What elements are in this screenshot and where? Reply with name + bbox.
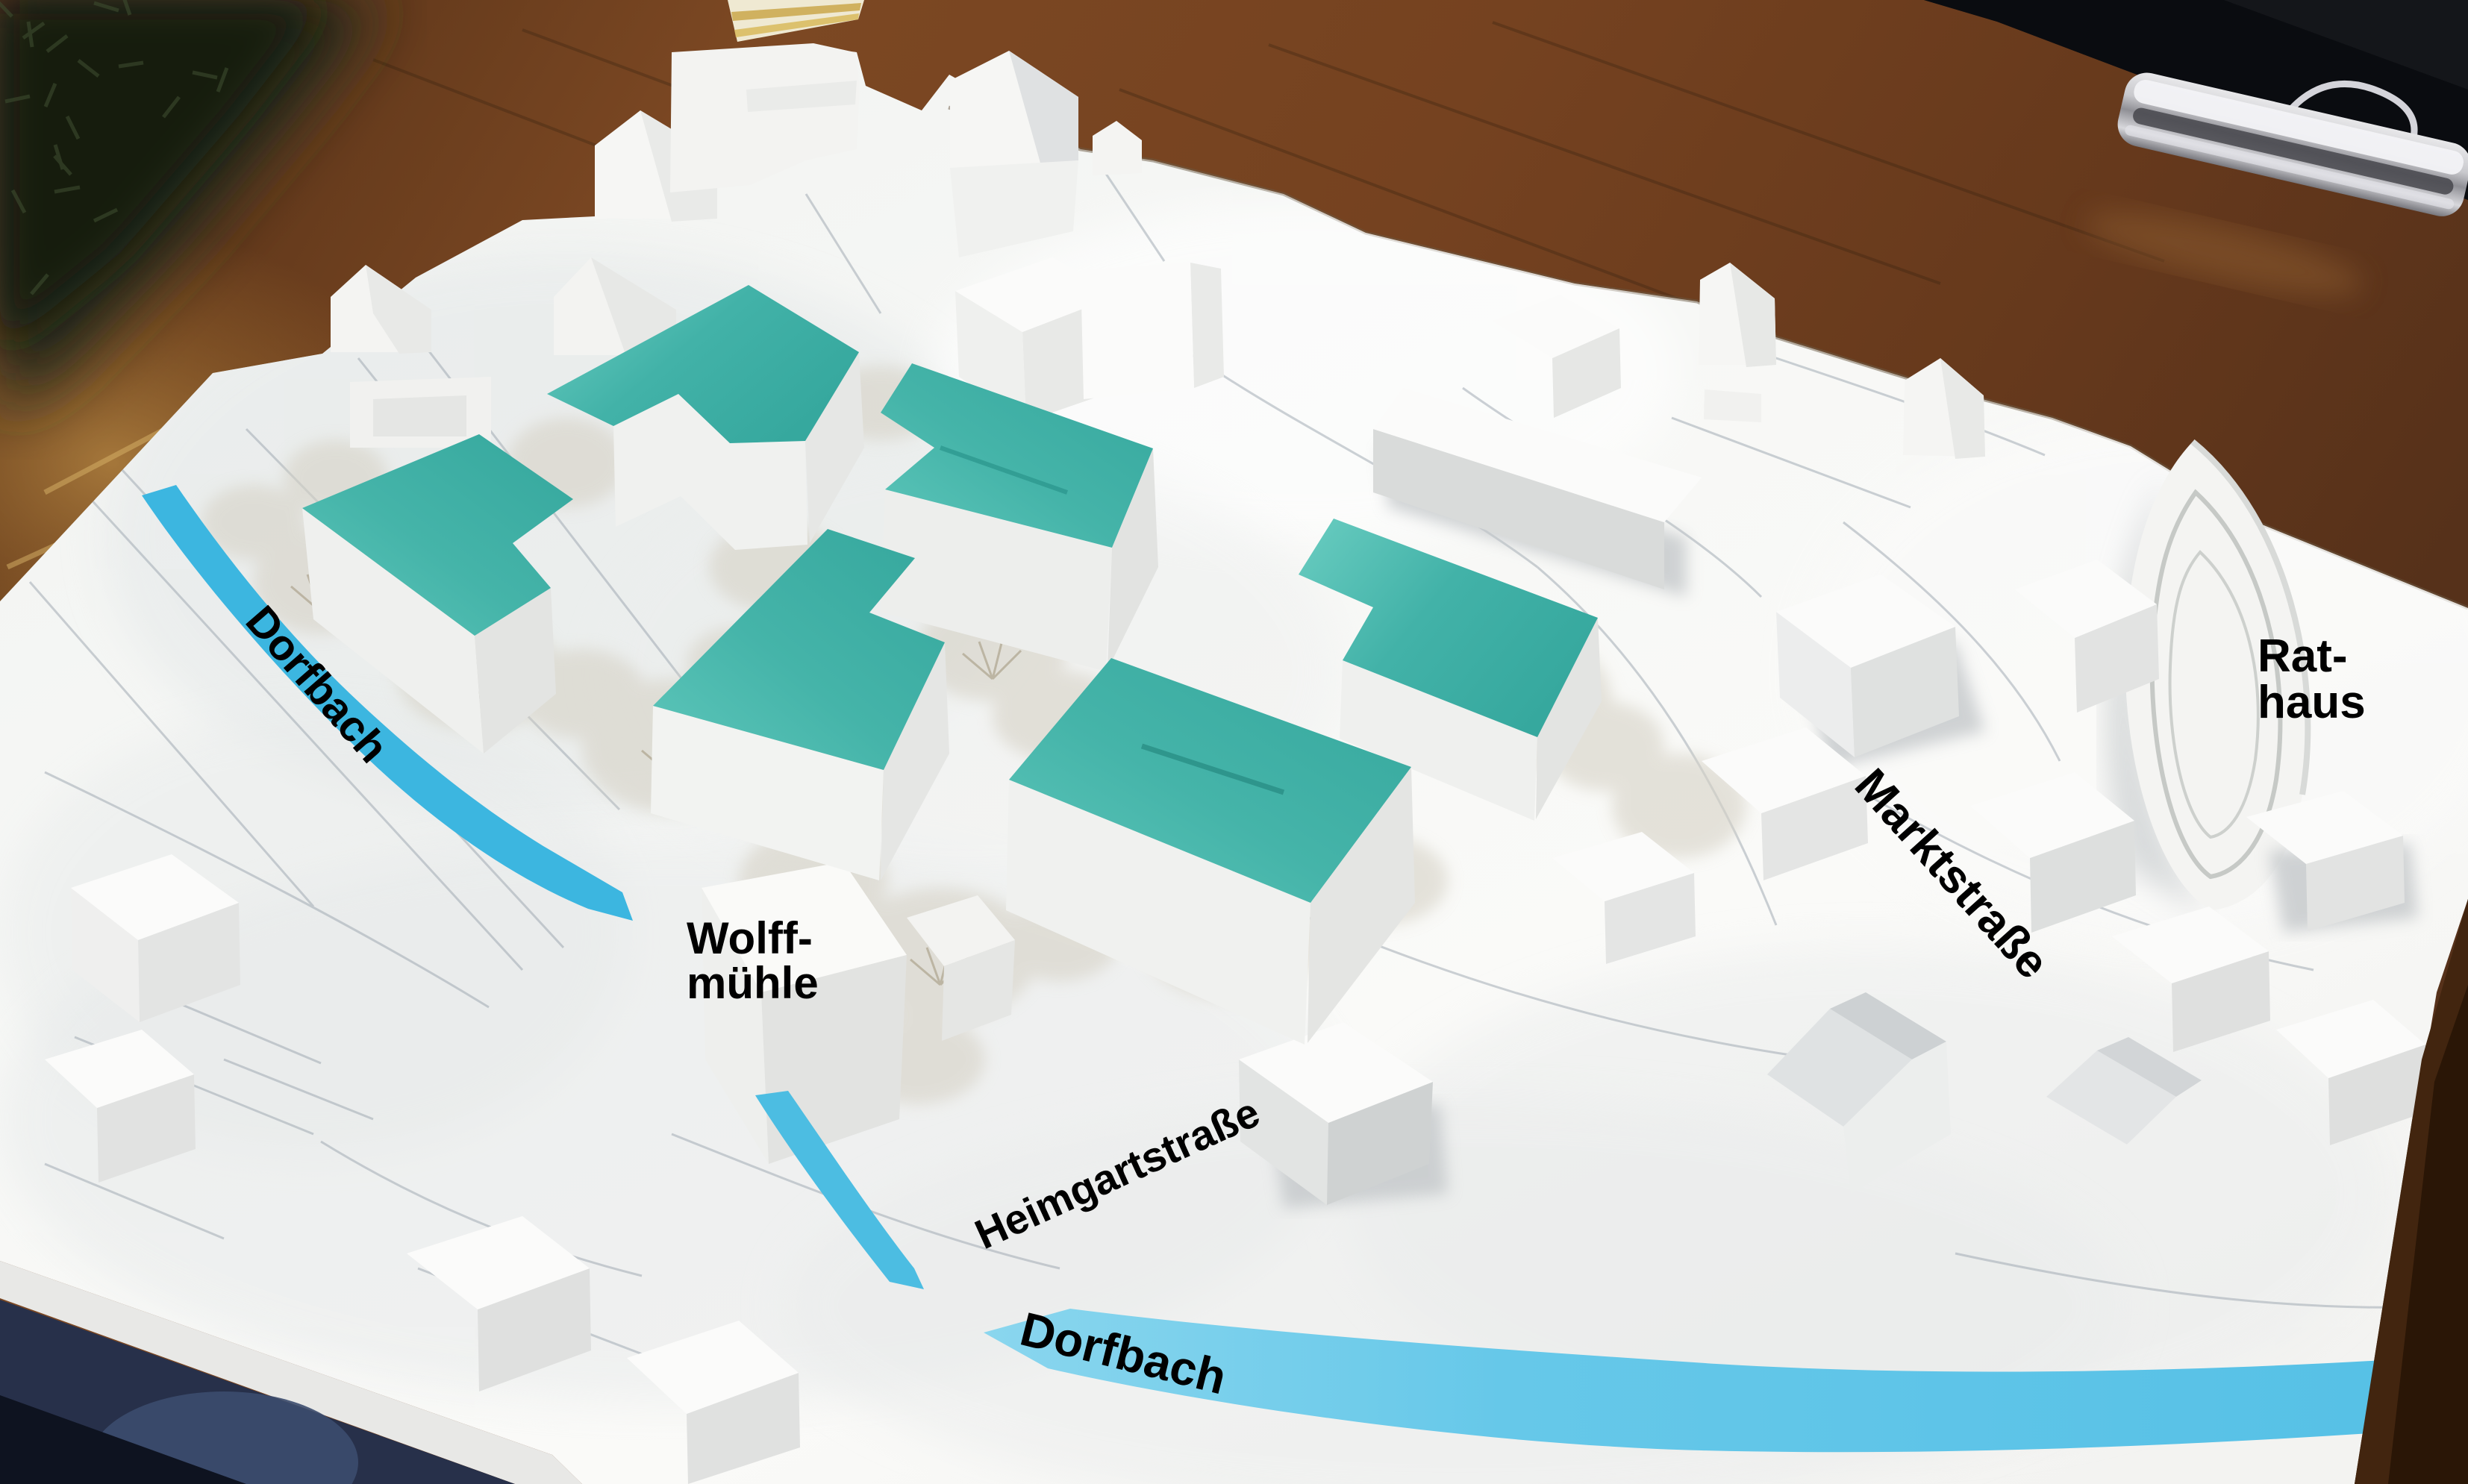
svg-text:Wolff-: Wolff- <box>687 913 813 963</box>
svg-text:mühle: mühle <box>687 958 819 1008</box>
svg-text:haus: haus <box>2258 677 2366 728</box>
svg-text:Rat-: Rat- <box>2258 630 2348 682</box>
